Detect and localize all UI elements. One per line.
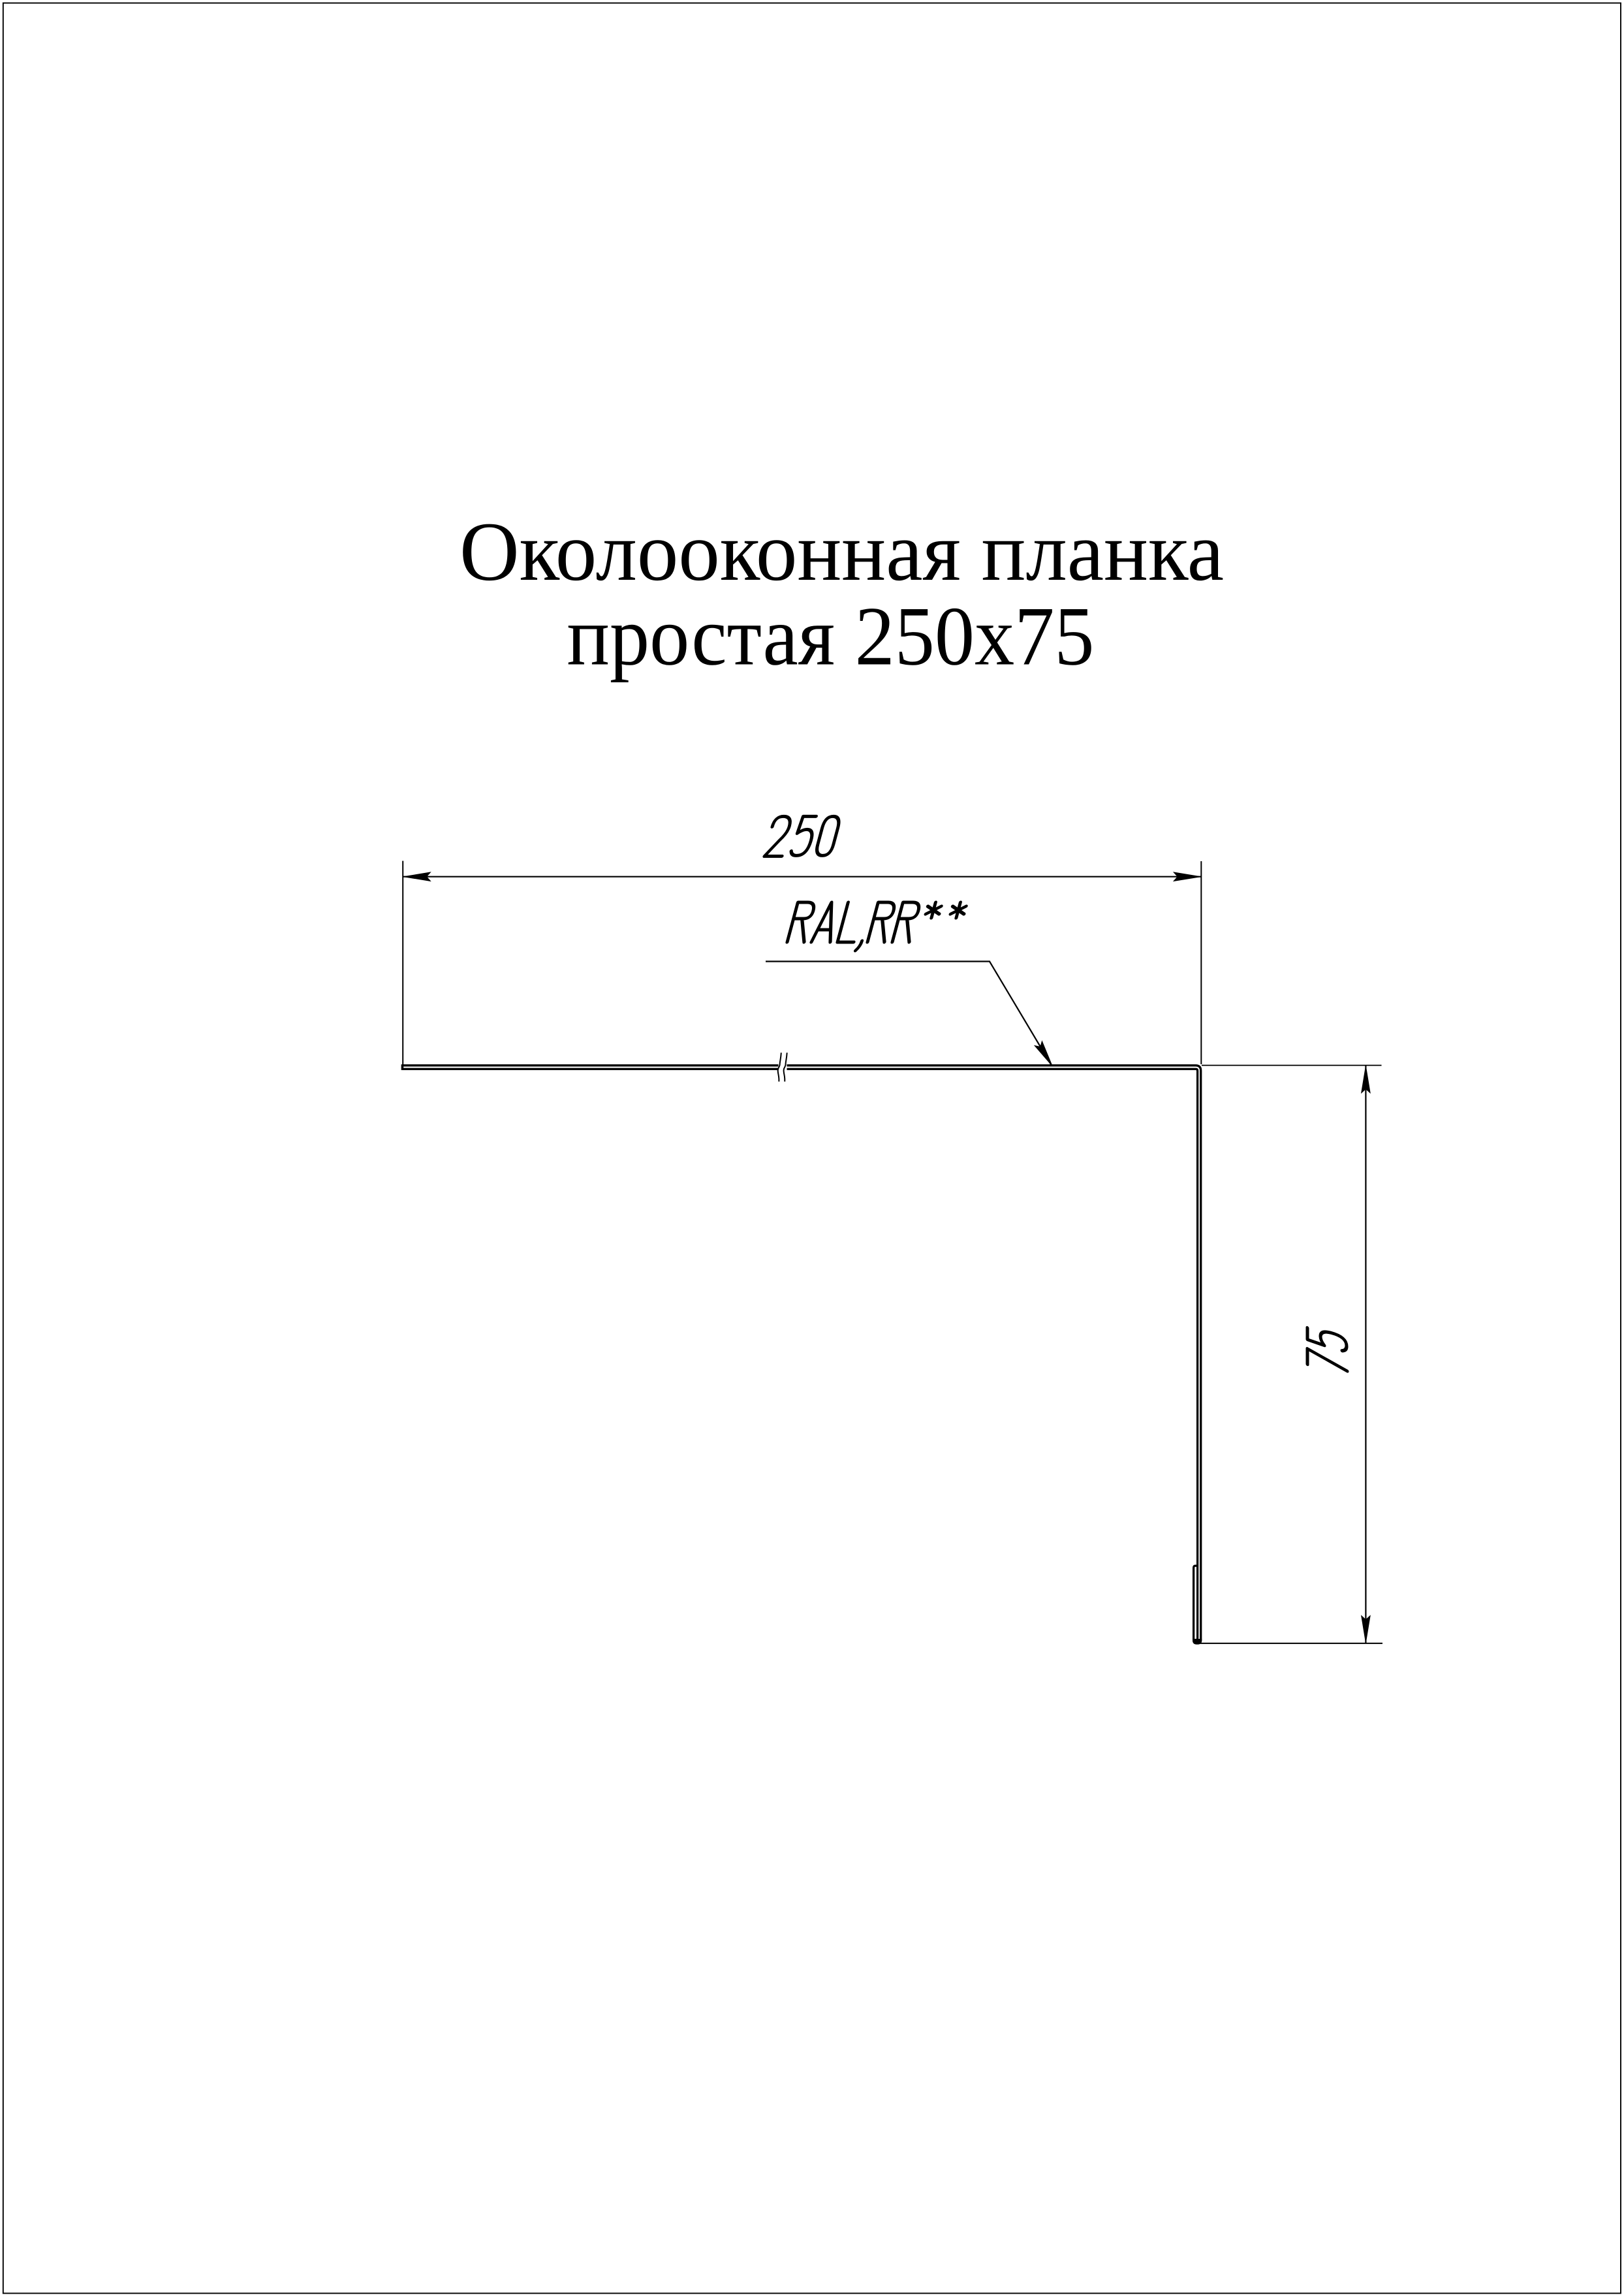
svg-text:простая 250х75: простая 250х75 [567, 590, 1095, 683]
svg-text:Околооконная планка: Околооконная планка [460, 505, 1224, 598]
